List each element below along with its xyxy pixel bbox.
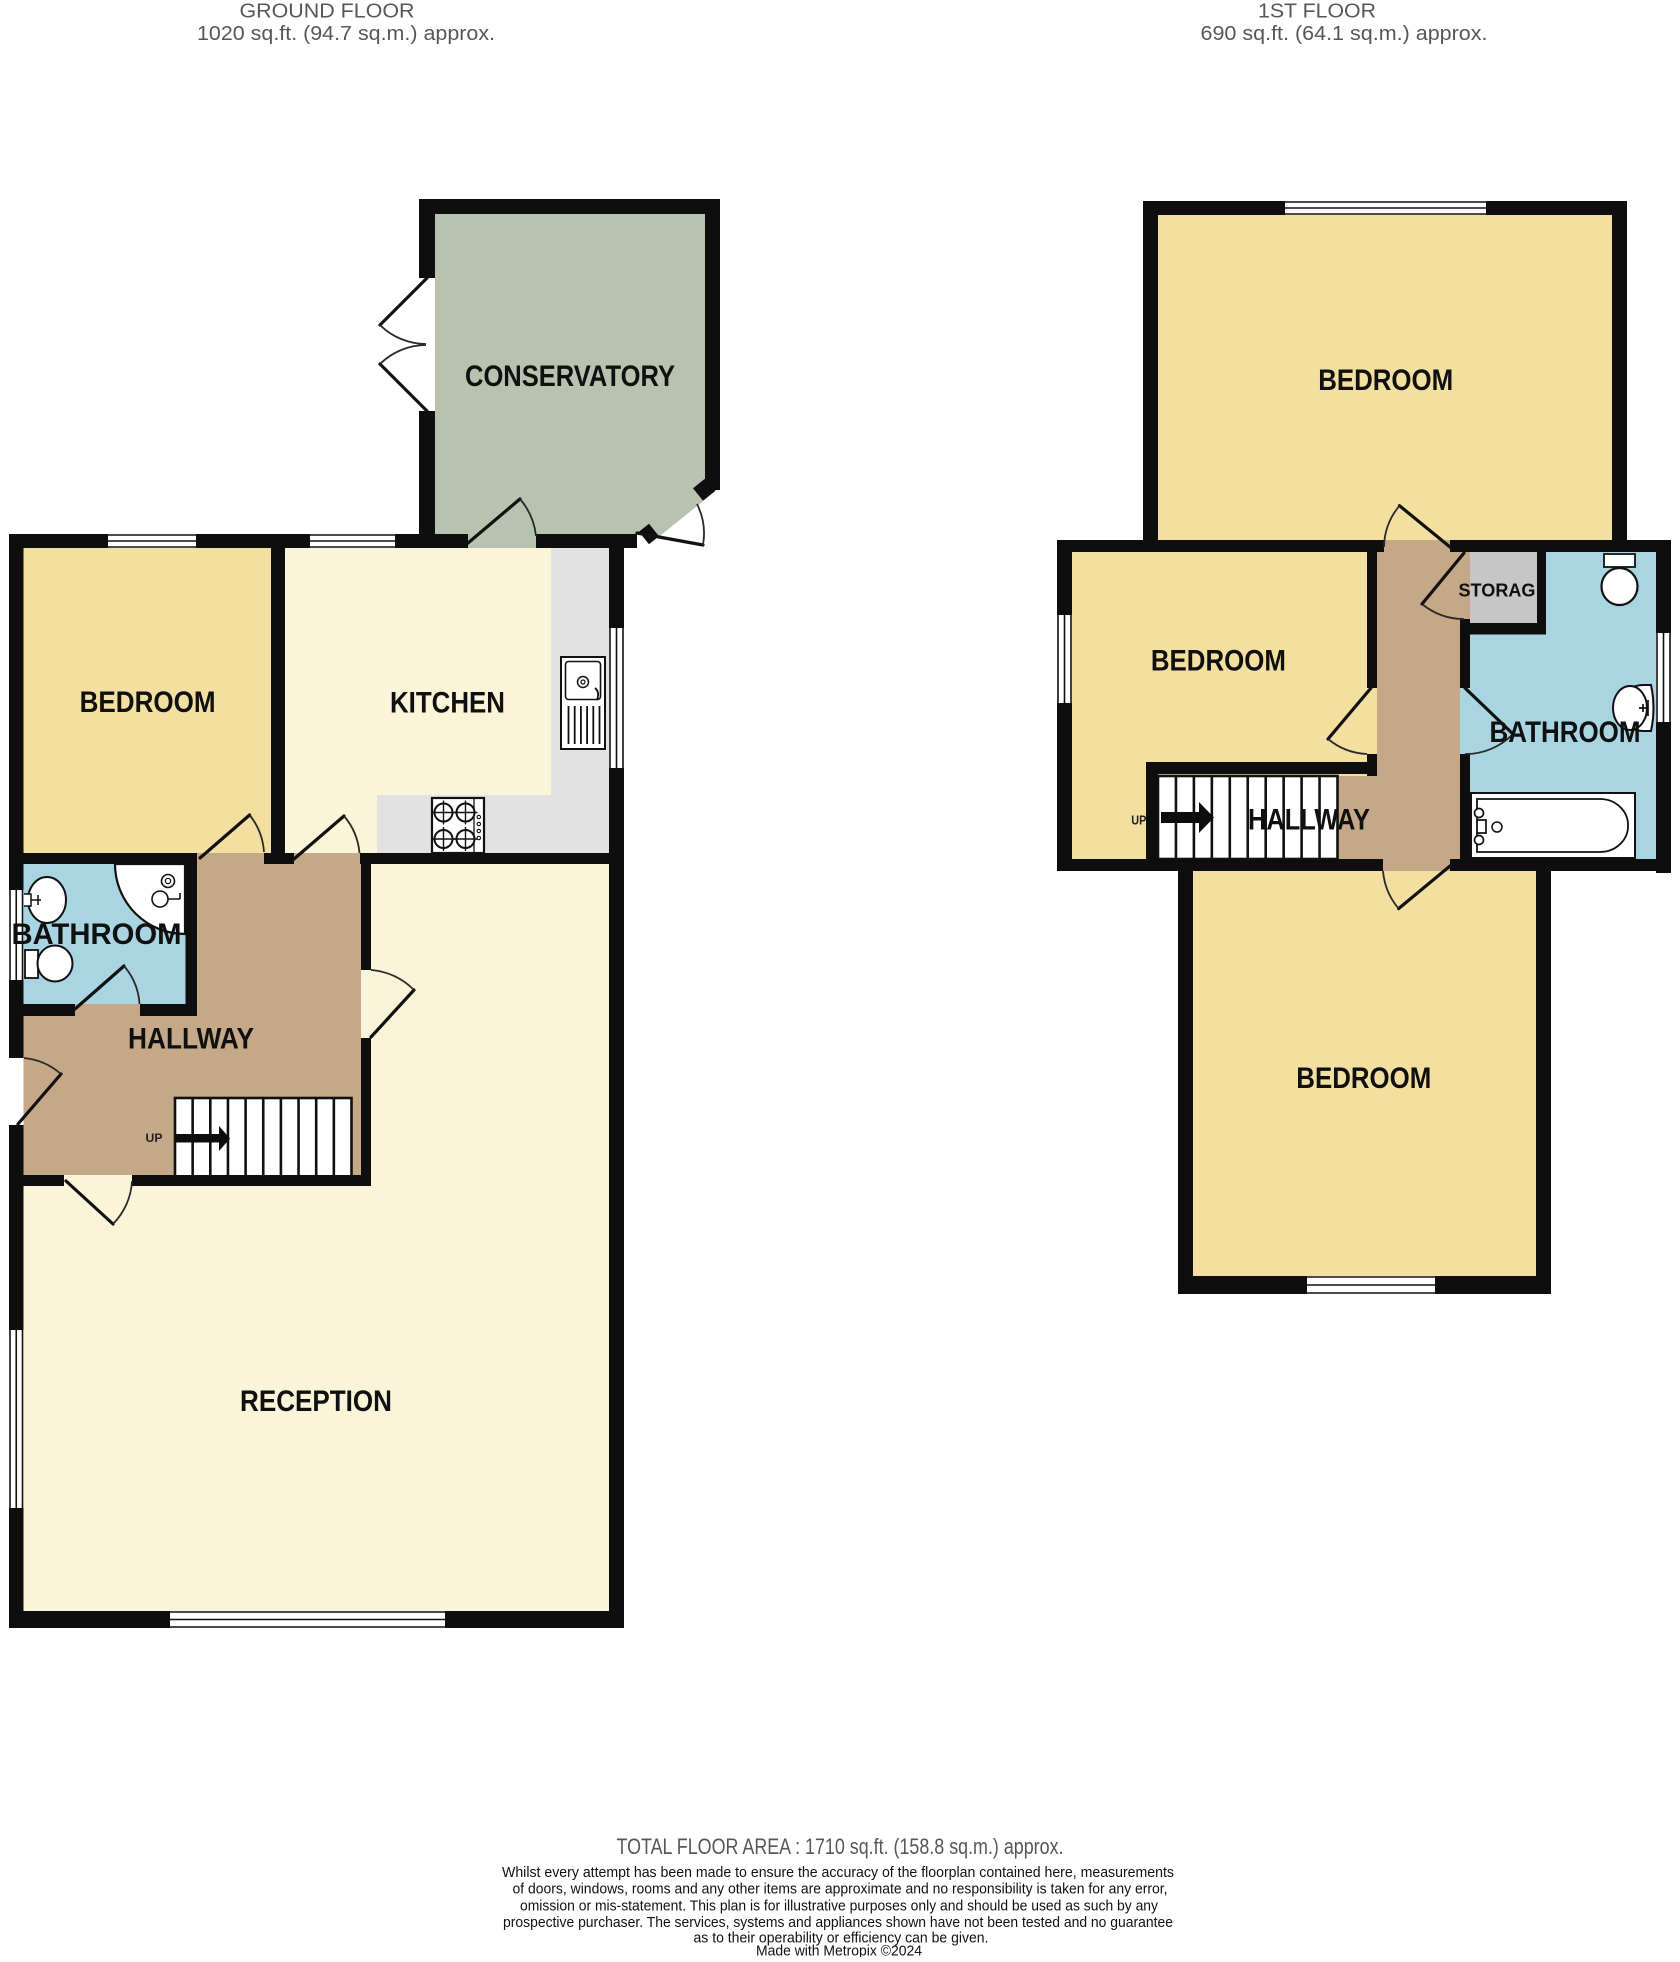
- svg-text:1020 sq.ft. (94.7 sq.m.) appro: 1020 sq.ft. (94.7 sq.m.) approx.: [197, 23, 495, 45]
- svg-text:omission or mis-statement. Thi: omission or mis-statement. This plan is …: [520, 1898, 1158, 1915]
- svg-text:BATHROOM: BATHROOM: [1490, 716, 1641, 749]
- svg-text:STORAG: STORAG: [1459, 581, 1536, 601]
- svg-text:1ST FLOOR: 1ST FLOOR: [1258, 1, 1376, 23]
- svg-text:UP: UP: [146, 1131, 163, 1145]
- svg-text:HALLWAY: HALLWAY: [128, 1022, 254, 1055]
- svg-text:KITCHEN: KITCHEN: [390, 687, 505, 720]
- svg-text:CONSERVATORY: CONSERVATORY: [465, 360, 675, 393]
- svg-text:BEDROOM: BEDROOM: [80, 686, 216, 719]
- svg-text:BATHROOM: BATHROOM: [12, 918, 182, 951]
- svg-text:GROUND FLOOR: GROUND FLOOR: [240, 1, 415, 23]
- svg-text:BEDROOM: BEDROOM: [1151, 644, 1286, 677]
- svg-text:RECEPTION: RECEPTION: [240, 1385, 392, 1418]
- svg-text:TOTAL FLOOR AREA : 1710 sq.ft.: TOTAL FLOOR AREA : 1710 sq.ft. (158.8 sq…: [617, 1834, 1064, 1859]
- svg-text:BEDROOM: BEDROOM: [1318, 364, 1453, 397]
- svg-text:HALLWAY: HALLWAY: [1248, 803, 1370, 836]
- svg-text:UP: UP: [1131, 813, 1146, 828]
- svg-text:Whilst every attempt has been: Whilst every attempt has been made to en…: [502, 1864, 1174, 1881]
- svg-text:Made with Metropix ©2024: Made with Metropix ©2024: [756, 1943, 922, 1958]
- svg-text:of doors, windows, rooms and a: of doors, windows, rooms and any other i…: [513, 1881, 1168, 1898]
- svg-text:prospective purchaser. The ser: prospective purchaser. The services, sys…: [503, 1914, 1173, 1931]
- svg-text:690 sq.ft. (64.1 sq.m.) approx: 690 sq.ft. (64.1 sq.m.) approx.: [1201, 23, 1488, 45]
- svg-text:BEDROOM: BEDROOM: [1296, 1062, 1431, 1095]
